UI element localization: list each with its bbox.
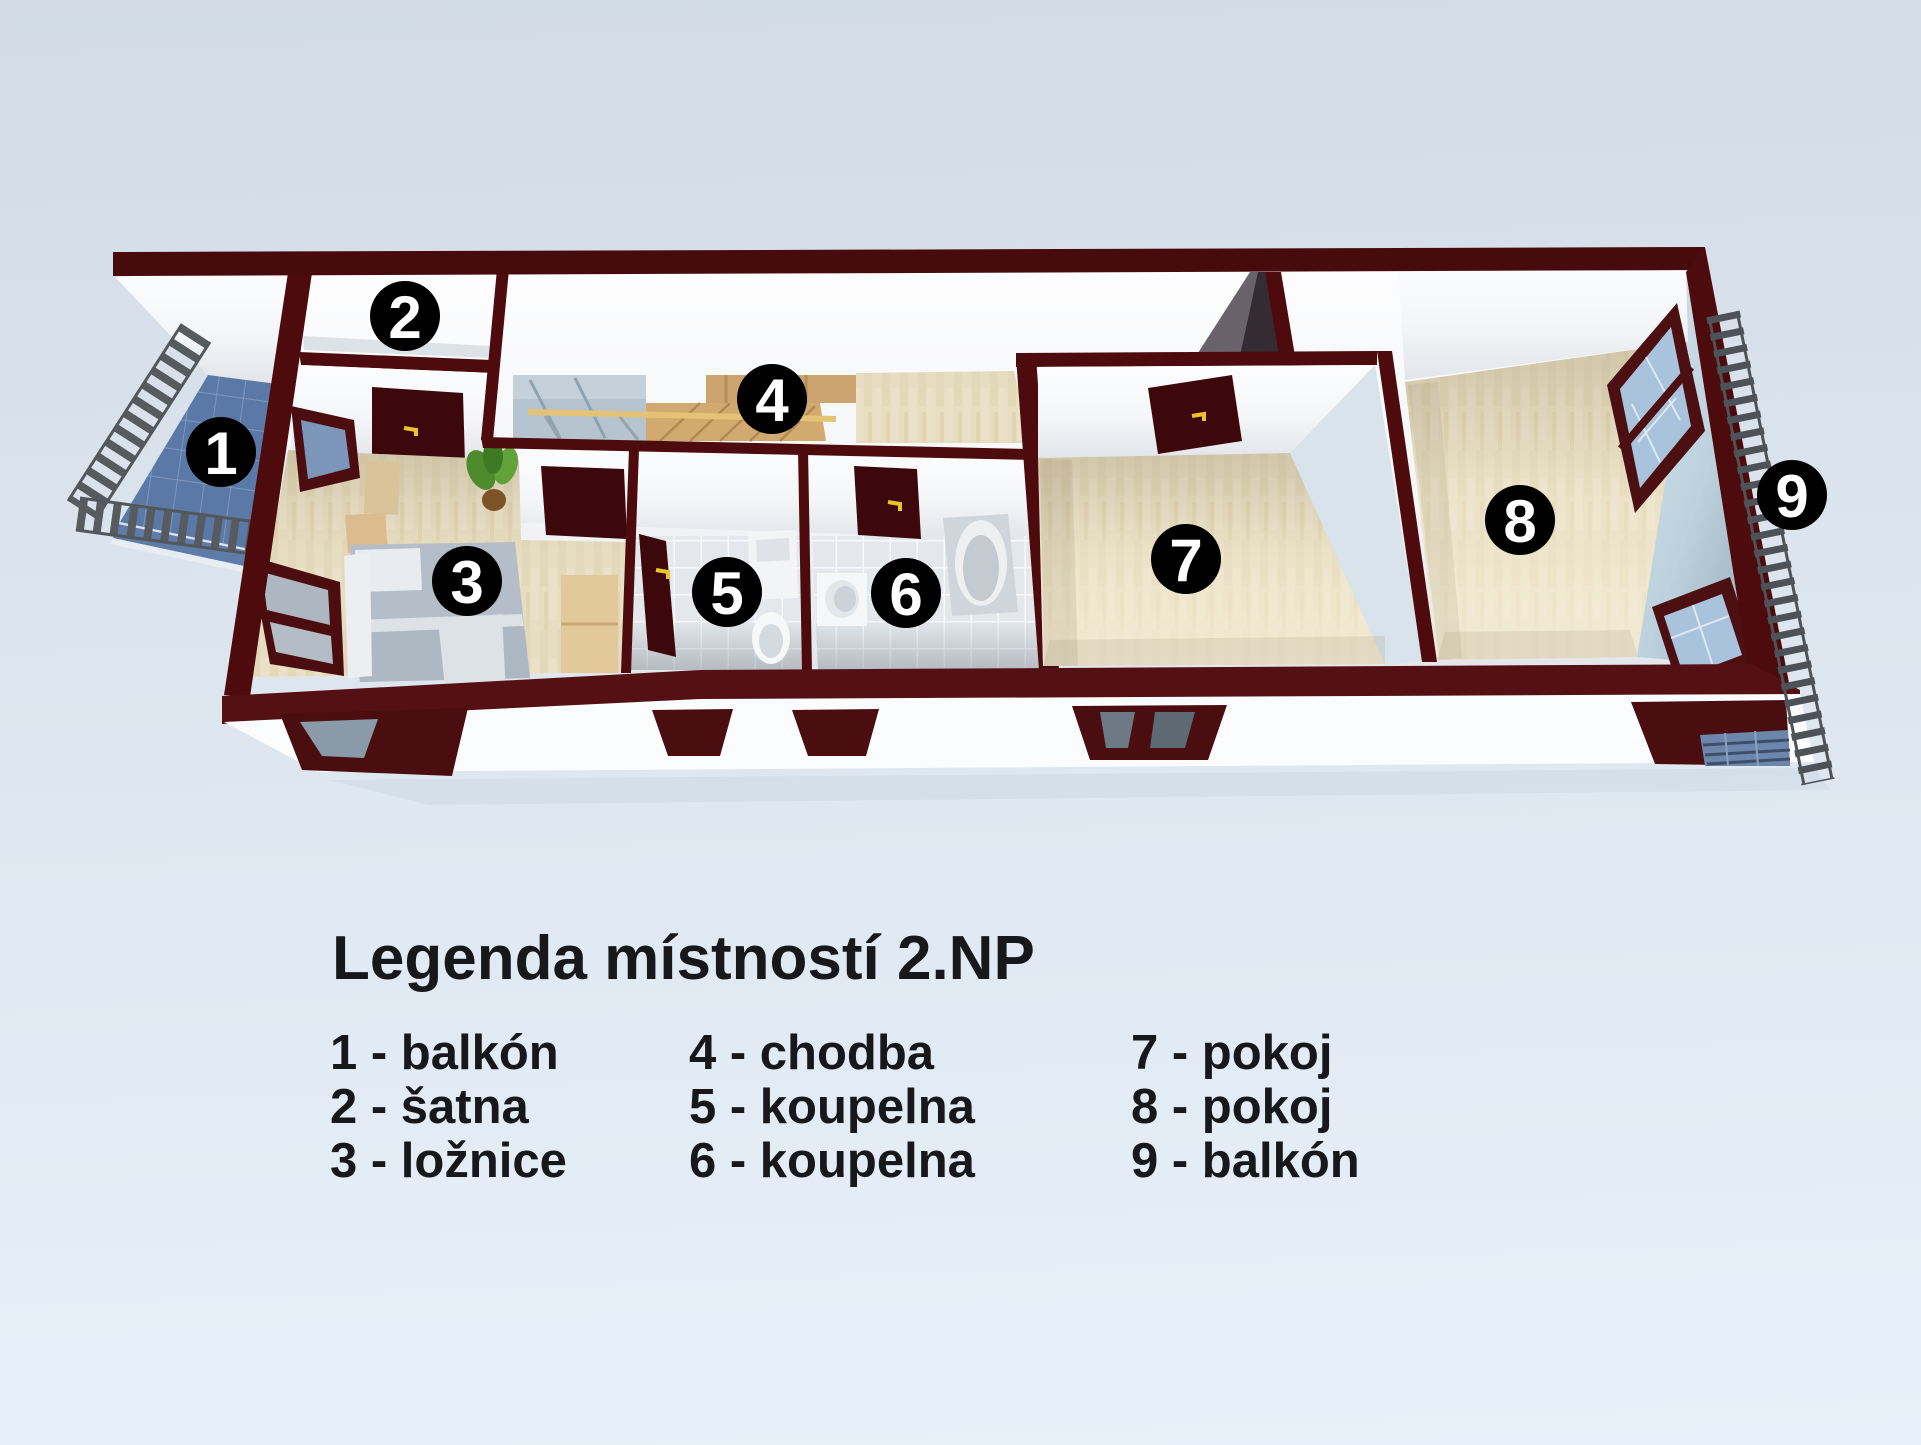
svg-text:6: 6: [889, 561, 922, 628]
svg-text:9: 9: [1775, 463, 1808, 530]
svg-text:2: 2: [388, 284, 421, 351]
svg-text:3: 3: [450, 549, 483, 616]
svg-text:5: 5: [710, 560, 743, 627]
svg-text:1: 1: [204, 420, 237, 487]
svg-text:7: 7: [1169, 527, 1202, 594]
svg-text:4: 4: [755, 367, 789, 434]
svg-text:8: 8: [1503, 488, 1536, 555]
